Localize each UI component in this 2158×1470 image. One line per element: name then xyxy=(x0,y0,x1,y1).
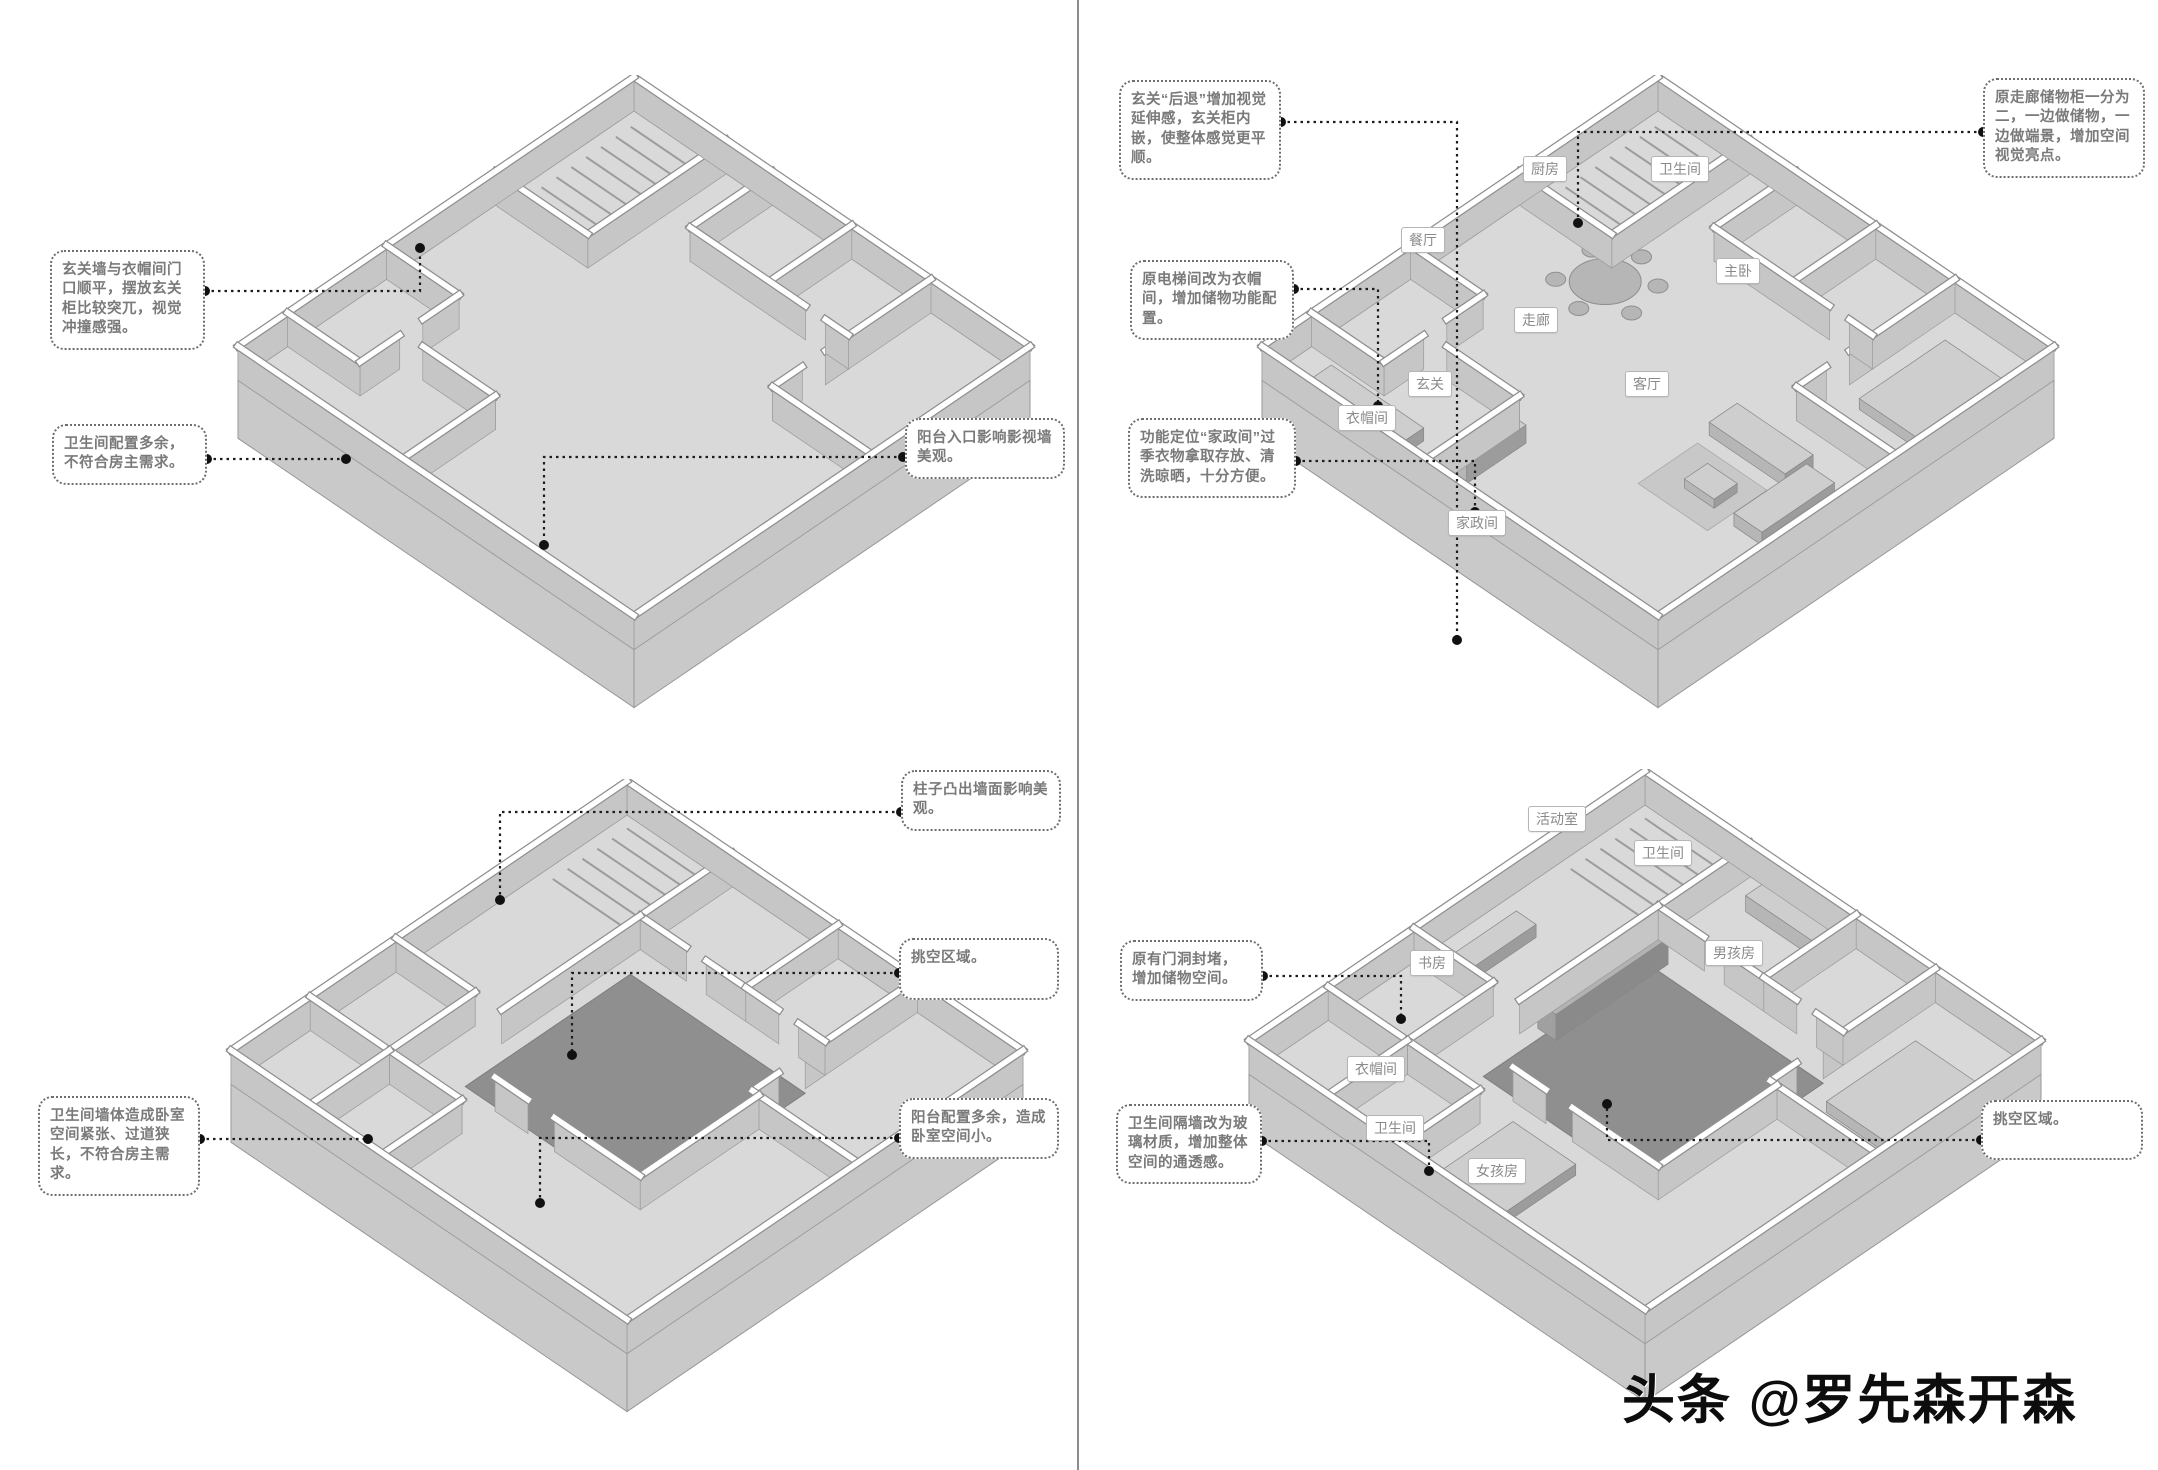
room-label-dining: 餐厅 xyxy=(1401,227,1445,253)
note-entry-recess: 玄关“后退”增加视觉延伸感，玄关柜内嵌，使整体感觉更平顺。 xyxy=(1119,80,1281,180)
room-label-boy: 男孩房 xyxy=(1705,940,1763,966)
room-label-bath-f1: 卫生间 xyxy=(1651,156,1709,182)
note-void-right: 挑空区域。 xyxy=(1981,1100,2143,1160)
room-label-bath-upper: 卫生间 xyxy=(1634,840,1692,866)
room-label-entry: 玄关 xyxy=(1408,371,1452,397)
page-canvas: 玄关墙与衣帽间门口顺平，摆放玄关柜比较突兀，视觉冲撞感强。 卫生间配置多余，不符… xyxy=(0,0,2158,1470)
divider-line xyxy=(1077,0,1079,1470)
room-label-study: 书房 xyxy=(1410,950,1454,976)
room-label-activity: 活动室 xyxy=(1528,806,1586,832)
room-label-living: 客厅 xyxy=(1625,371,1669,397)
note-column: 柱子凸出墙面影响美观。 xyxy=(901,770,1061,831)
note-door-sealed: 原有门洞封堵，增加储物空间。 xyxy=(1120,940,1263,1001)
room-label-cloak-f1: 衣帽间 xyxy=(1338,405,1396,431)
note-balcony-tv: 阳台入口影响影视墙美观。 xyxy=(905,418,1065,479)
watermark: 头条 @罗先森开森 xyxy=(1622,1358,2152,1434)
note-void-left: 挑空区域。 xyxy=(899,938,1059,1000)
room-label-kitchen: 厨房 xyxy=(1523,156,1567,182)
note-bath-wall: 卫生间墙体造成卧室空间紧张、过道狭长，不符合房主需求。 xyxy=(38,1096,200,1196)
room-label-cloak-f2: 衣帽间 xyxy=(1347,1056,1405,1082)
room-label-master: 主卧 xyxy=(1716,258,1760,284)
note-balcony-extra: 阳台配置多余，造成卧室空间小。 xyxy=(899,1098,1059,1159)
floor-plan-after-floor2 xyxy=(1225,769,2065,1449)
room-label-bath-lower: 卫生间 xyxy=(1366,1115,1424,1141)
room-label-laundry: 家政间 xyxy=(1448,510,1506,536)
room-label-girl: 女孩房 xyxy=(1468,1158,1526,1184)
note-bath-extra: 卫生间配置多余，不符合房主需求。 xyxy=(52,424,207,485)
note-elevator-cloak: 原电梯间改为衣帽间，增加储物功能配置。 xyxy=(1130,260,1294,340)
room-label-corridor: 走廊 xyxy=(1514,307,1558,333)
note-bath-glass: 卫生间隔墙改为玻璃材质，增加整体空间的通透感。 xyxy=(1116,1104,1262,1184)
floor-plan-before-floor1 xyxy=(214,75,1054,755)
note-laundry-room: 功能定位“家政间”过季衣物拿取存放、清洗晾晒，十分方便。 xyxy=(1128,418,1296,498)
note-corridor-cabinet: 原走廊储物柜一分为二，一边做储物，一边做端景，增加空间视觉亮点。 xyxy=(1983,78,2145,178)
note-entry-clash: 玄关墙与衣帽间门口顺平，摆放玄关柜比较突兀，视觉冲撞感强。 xyxy=(50,250,205,350)
